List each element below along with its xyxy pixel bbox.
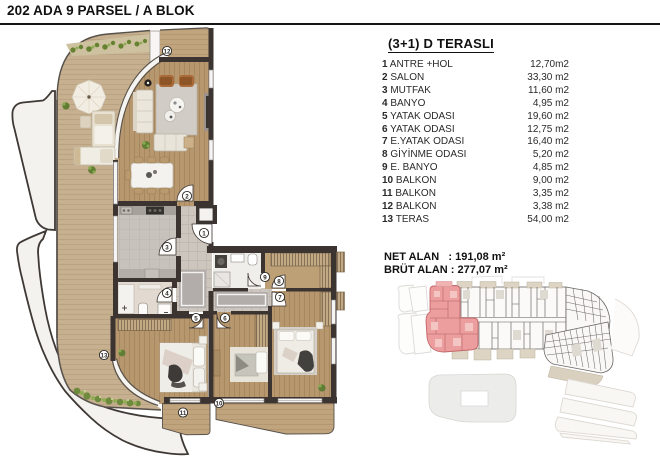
svg-text:12: 12 bbox=[164, 48, 171, 55]
svg-text:11: 11 bbox=[180, 410, 187, 417]
svg-text:2: 2 bbox=[185, 193, 189, 200]
svg-text:1: 1 bbox=[202, 230, 206, 237]
svg-text:5: 5 bbox=[194, 315, 198, 322]
svg-text:13: 13 bbox=[101, 352, 108, 359]
svg-text:7: 7 bbox=[278, 294, 282, 301]
svg-text:10: 10 bbox=[216, 400, 223, 407]
svg-text:3: 3 bbox=[165, 244, 169, 251]
svg-text:9: 9 bbox=[263, 274, 267, 281]
svg-text:6: 6 bbox=[223, 315, 227, 322]
svg-text:4: 4 bbox=[165, 290, 169, 297]
svg-text:8: 8 bbox=[277, 278, 281, 285]
